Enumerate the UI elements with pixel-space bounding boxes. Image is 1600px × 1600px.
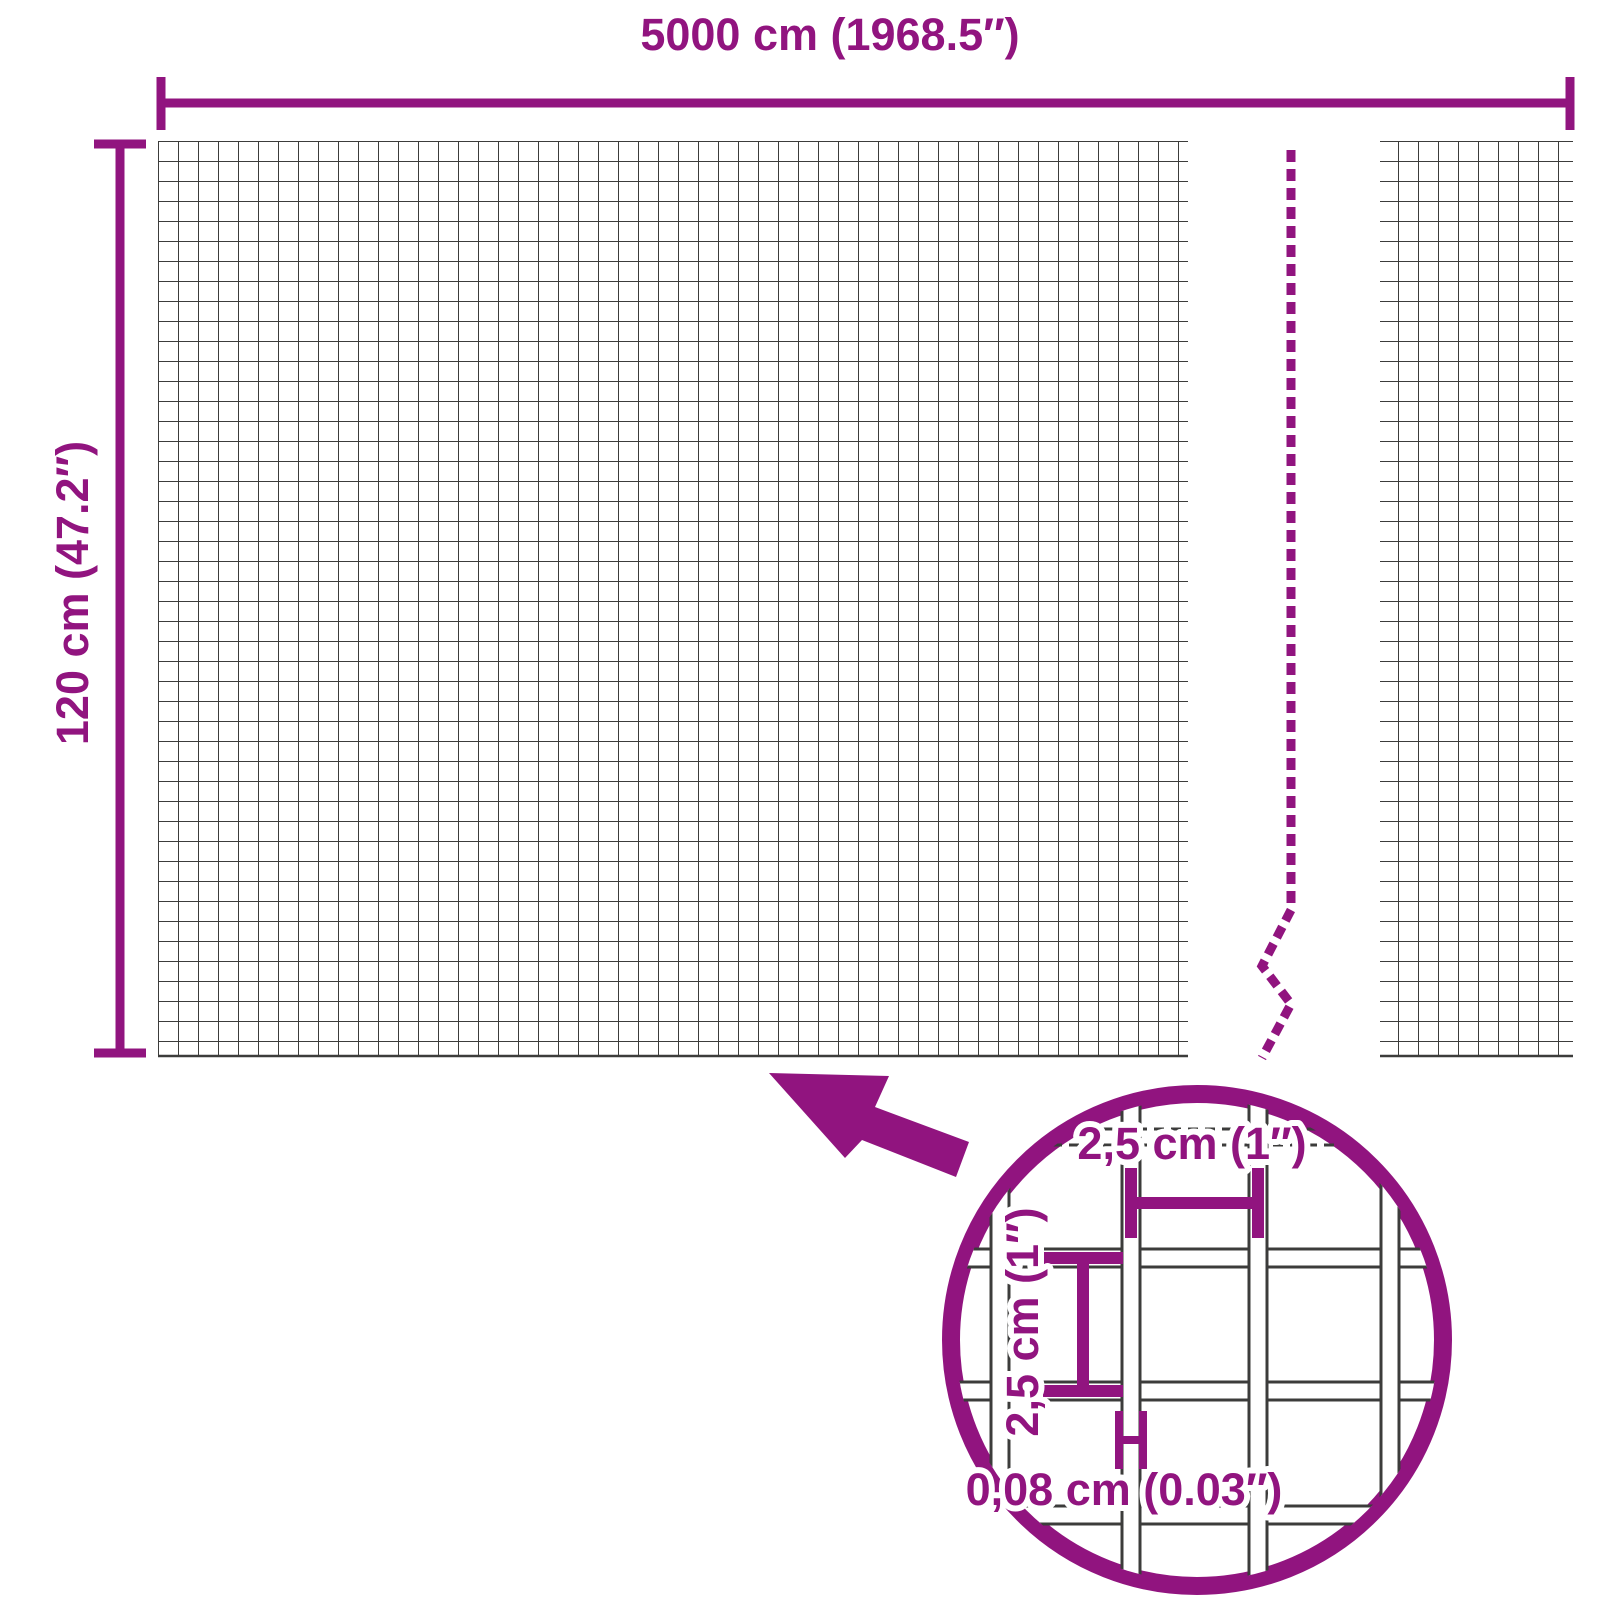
wire-thickness-label: 0,08 cm (0.03″) <box>966 1464 1283 1515</box>
diagram-canvas: 5000 cm (1968.5″) 120 cm (47.2″) <box>0 0 1600 1600</box>
width-dimension <box>158 77 1570 130</box>
width-dimension-label: 5000 cm (1968.5″) <box>640 9 1019 60</box>
zoom-arrow <box>769 1073 969 1177</box>
product-dimension-diagram: 5000 cm (1968.5″) 120 cm (47.2″) <box>0 0 1600 1600</box>
mesh-cell-height-label: 2,5 cm (1″) <box>997 1207 1048 1436</box>
mesh-panels <box>158 141 1573 1057</box>
mesh-panel-right <box>1380 141 1573 1057</box>
wire-vertical <box>1381 1089 1399 1591</box>
height-dimension <box>94 144 146 1053</box>
mesh-panel-left <box>158 141 1188 1057</box>
panel-break-line <box>1262 150 1291 1058</box>
height-dimension-label: 120 cm (47.2″) <box>47 441 98 745</box>
mesh-cell-width-label: 2,5 cm (1″) <box>1077 1118 1306 1169</box>
magnifier: 2,5 cm (1″) 2,5 cm (1″) 0,08 cm (0.03″) <box>946 1089 1448 1591</box>
